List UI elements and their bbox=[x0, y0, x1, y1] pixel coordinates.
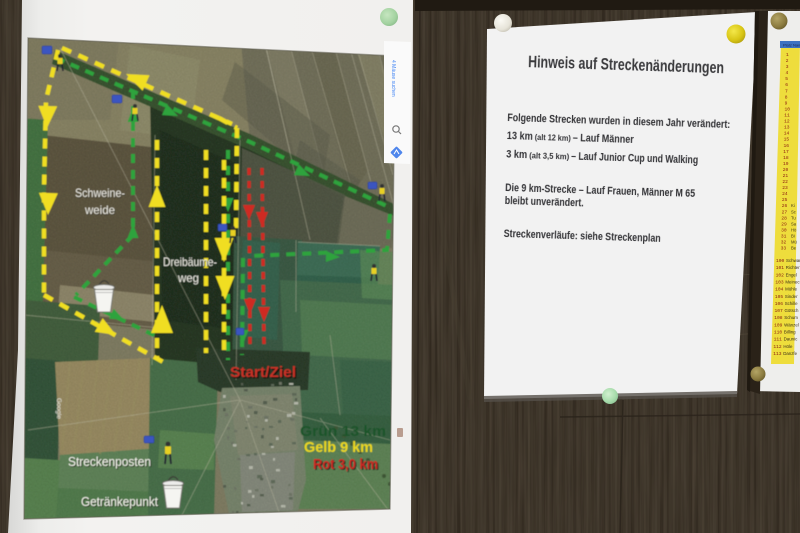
svg-text:112: 112 bbox=[773, 344, 782, 350]
svg-text:28: 28 bbox=[781, 215, 787, 221]
svg-text:27: 27 bbox=[782, 209, 788, 215]
svg-text:33: 33 bbox=[781, 246, 787, 252]
svg-text:10: 10 bbox=[785, 106, 791, 112]
svg-text:23: 23 bbox=[782, 185, 788, 191]
svg-text:12: 12 bbox=[784, 119, 790, 125]
svg-text:– Lauf Männer: – Lauf Männer bbox=[573, 132, 635, 146]
svg-text:Wänzel: Wänzel bbox=[784, 322, 799, 327]
svg-text:Google: Google bbox=[55, 398, 62, 419]
svg-text:Hö: Hö bbox=[791, 227, 797, 232]
svg-text:Bi: Bi bbox=[791, 234, 795, 239]
svg-text:Götsch: Götsch bbox=[785, 308, 799, 313]
svg-text:102: 102 bbox=[776, 272, 785, 278]
svg-text:107: 107 bbox=[775, 308, 784, 314]
svg-text:Höle: Höle bbox=[783, 344, 793, 349]
svg-text:(alt 12 km): (alt 12 km) bbox=[535, 132, 571, 143]
svg-text:weg: weg bbox=[177, 271, 199, 285]
svg-text:21: 21 bbox=[783, 173, 789, 179]
svg-text:3: 3 bbox=[786, 64, 789, 70]
svg-text:108: 108 bbox=[774, 315, 783, 321]
svg-text:6: 6 bbox=[785, 82, 788, 88]
svg-text:Schum: Schum bbox=[784, 315, 798, 320]
svg-text:104: 104 bbox=[775, 287, 784, 293]
svg-text:Mü: Mü bbox=[791, 240, 797, 245]
svg-text:Streckenposten: Streckenposten bbox=[68, 454, 151, 469]
svg-text:11: 11 bbox=[784, 113, 790, 119]
svg-text:30: 30 bbox=[781, 227, 787, 233]
svg-text:14: 14 bbox=[784, 131, 790, 137]
svg-text:101: 101 bbox=[776, 265, 785, 271]
svg-text:13: 13 bbox=[784, 125, 790, 131]
svg-text:Schille: Schille bbox=[785, 301, 798, 306]
svg-text:31: 31 bbox=[781, 234, 787, 240]
svg-text:20: 20 bbox=[783, 167, 789, 173]
svg-text:Sinder: Sinder bbox=[785, 294, 798, 299]
svg-text:32: 32 bbox=[781, 240, 787, 246]
svg-text:16: 16 bbox=[784, 143, 790, 149]
svg-text:Grün 13 km: Grün 13 km bbox=[300, 423, 386, 440]
svg-text:15: 15 bbox=[784, 137, 790, 143]
svg-text:Sc: Sc bbox=[791, 209, 796, 214]
svg-text:Richter: Richter bbox=[786, 265, 800, 270]
svg-text:Rot 3,0 km: Rot 3,0 km bbox=[313, 456, 378, 473]
svg-text:110: 110 bbox=[774, 330, 783, 336]
svg-text:Dreibäume-: Dreibäume- bbox=[163, 255, 217, 269]
svg-text:Danzfe: Danzfe bbox=[783, 351, 797, 356]
svg-text:Meinec: Meinec bbox=[785, 279, 800, 284]
svg-text:17: 17 bbox=[783, 149, 789, 155]
svg-text:5: 5 bbox=[785, 76, 788, 82]
svg-text:22: 22 bbox=[782, 179, 788, 185]
svg-text:105: 105 bbox=[775, 294, 784, 300]
svg-text:Daunic: Daunic bbox=[784, 337, 798, 342]
svg-text:103: 103 bbox=[775, 279, 784, 285]
svg-text:4: 4 bbox=[786, 70, 789, 76]
svg-text:Be: Be bbox=[791, 246, 797, 251]
svg-text:Schwan: Schwan bbox=[786, 258, 800, 263]
svg-text:13 km: 13 km bbox=[507, 130, 534, 143]
svg-text:Schweine-: Schweine- bbox=[75, 186, 125, 200]
svg-text:4 Mäuse suchen: 4 Mäuse suchen bbox=[390, 60, 396, 97]
svg-text:113: 113 bbox=[773, 351, 782, 357]
svg-text:18: 18 bbox=[783, 155, 789, 161]
svg-text:3 km: 3 km bbox=[506, 148, 528, 161]
svg-text:25: 25 bbox=[782, 197, 788, 203]
svg-text:Gelb 9 km: Gelb 9 km bbox=[304, 439, 373, 456]
svg-text:9: 9 bbox=[785, 100, 788, 106]
svg-text:Start/Ziel: Start/Ziel bbox=[230, 364, 296, 381]
svg-text:Platz Name: Platz Name bbox=[783, 43, 800, 48]
svg-text:19: 19 bbox=[783, 161, 789, 167]
svg-text:Engel: Engel bbox=[786, 272, 797, 277]
svg-text:109: 109 bbox=[774, 322, 783, 328]
svg-text:Ki: Ki bbox=[791, 203, 795, 208]
svg-text:1: 1 bbox=[786, 52, 789, 58]
svg-text:111: 111 bbox=[774, 337, 783, 343]
svg-text:7: 7 bbox=[785, 88, 788, 94]
svg-text:Billing: Billing bbox=[784, 330, 796, 335]
svg-text:100: 100 bbox=[776, 258, 785, 264]
svg-text:Getränkepunkt: Getränkepunkt bbox=[81, 494, 158, 509]
svg-text:Sa: Sa bbox=[791, 221, 797, 226]
svg-text:Tu: Tu bbox=[791, 215, 796, 220]
svg-text:Mühle: Mühle bbox=[785, 287, 798, 292]
svg-text:8: 8 bbox=[785, 94, 788, 100]
svg-text:bleibt unverändert.: bleibt unverändert. bbox=[505, 195, 584, 209]
svg-text:26: 26 bbox=[782, 203, 788, 209]
svg-text:29: 29 bbox=[781, 221, 787, 227]
svg-text:2: 2 bbox=[786, 58, 789, 64]
svg-text:24: 24 bbox=[782, 191, 788, 197]
svg-text:106: 106 bbox=[775, 301, 784, 307]
svg-text:weide: weide bbox=[84, 203, 115, 217]
svg-text:(alt 3,5 km): (alt 3,5 km) bbox=[529, 150, 569, 161]
